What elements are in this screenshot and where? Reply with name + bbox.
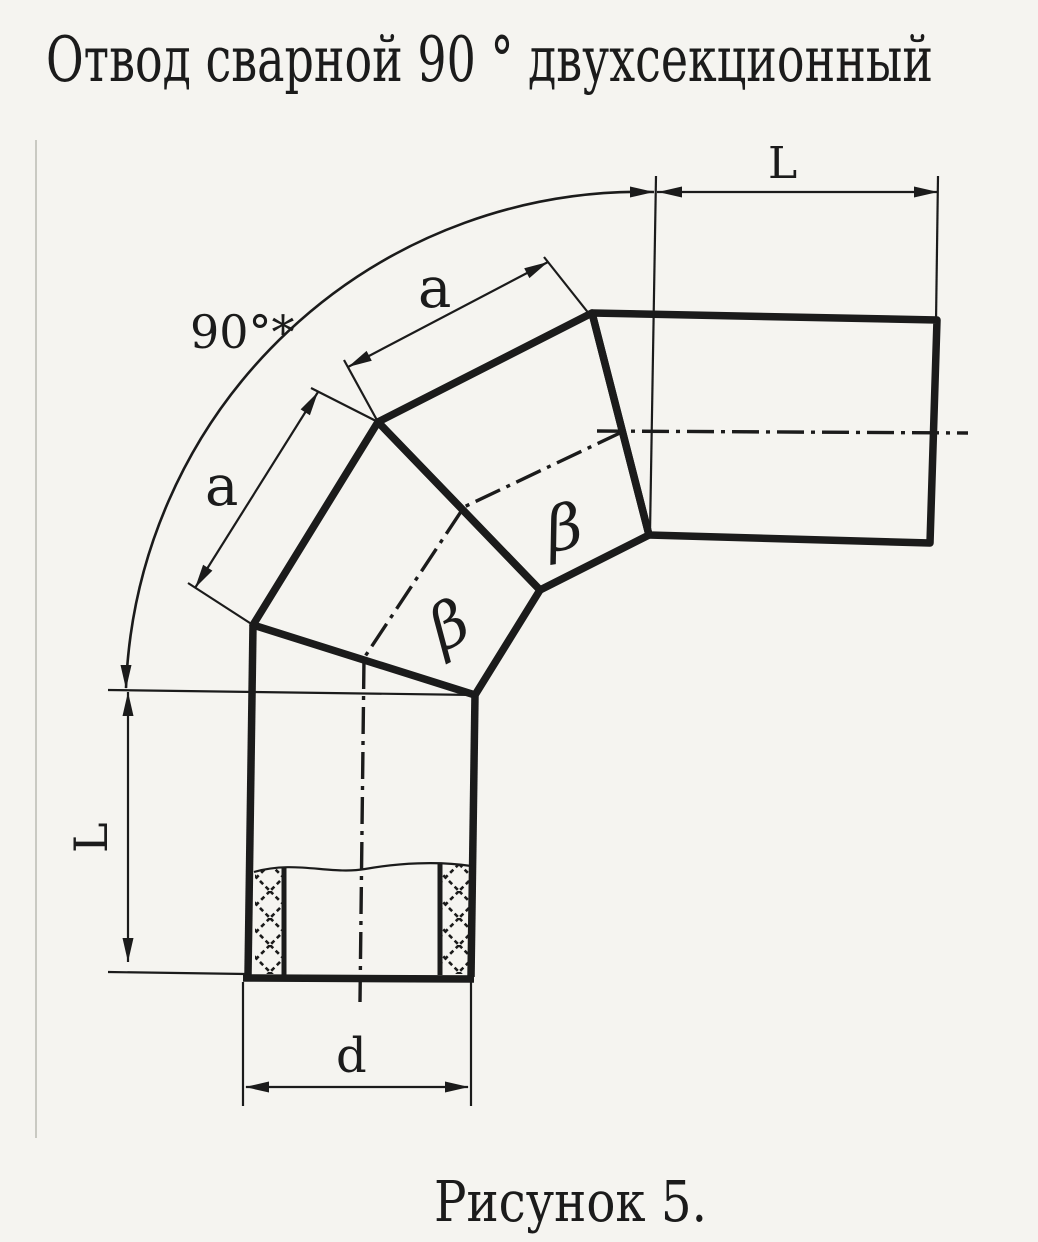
segment-upper-label: a [418,256,451,321]
arc-arrowhead-top [630,187,654,198]
dim-segment-upper: a [344,256,590,422]
inlet-pipe-left-wall [248,625,253,975]
diameter-label: d [336,1028,367,1084]
dim-arrowhead-lower-bottom [195,565,212,588]
bevel-angle-lower-label: β [415,584,481,666]
dim-angle-arc: 90°* [121,187,655,690]
lower-elbow-section-outline [253,422,540,695]
dim-arrowhead-upper-left [348,351,372,367]
dim-arrowhead-left [245,1082,269,1093]
elbow-drawing: 90°* L a a [0,0,1038,1242]
dim-arrowhead-bottom [123,938,134,962]
dim-diameter: d [243,982,471,1106]
inlet-length-label: L [64,822,118,853]
dim-arrowhead-lower-top [301,392,318,415]
page-title: Отвод сварной 90 ° двухсекционный [46,23,933,96]
upper-elbow-section-outline [378,313,649,590]
bevel-angle-upper-label: β [538,489,588,567]
extension-line-upper-right [544,257,590,315]
dim-outlet-length: L [650,138,938,533]
extension-line-weld-plane [650,176,656,533]
dim-arrowhead-right [914,187,938,198]
segment-lower-label: a [205,454,238,519]
outlet-length-label: L [768,138,797,189]
inlet-pipe-right-wall [471,695,475,977]
extension-line-pipe-end [936,176,938,322]
dim-arrowhead-right [445,1082,469,1093]
angle-label: 90°* [190,305,295,359]
inlet-pipe-end-face [243,978,474,979]
wall-hatch-left [255,869,282,974]
figure-caption: Рисунок 5. [434,1170,707,1235]
dim-arrowhead-top [123,692,134,716]
extension-line-lower-bottom [188,583,253,625]
dim-arrowhead-upper-right [524,262,548,278]
dim-arrowhead-left [658,187,682,198]
dim-segment-lower: a [188,388,378,625]
extension-line-inlet-end [108,972,246,974]
arc-arrowhead-bottom [121,665,132,689]
extension-line-transition-plane [108,690,476,695]
scanned-page: 90°* L a a [0,0,1038,1242]
centerline-elbow-axis [360,432,622,1002]
angle-arc [126,192,654,688]
wall-hatch-right [442,864,469,974]
